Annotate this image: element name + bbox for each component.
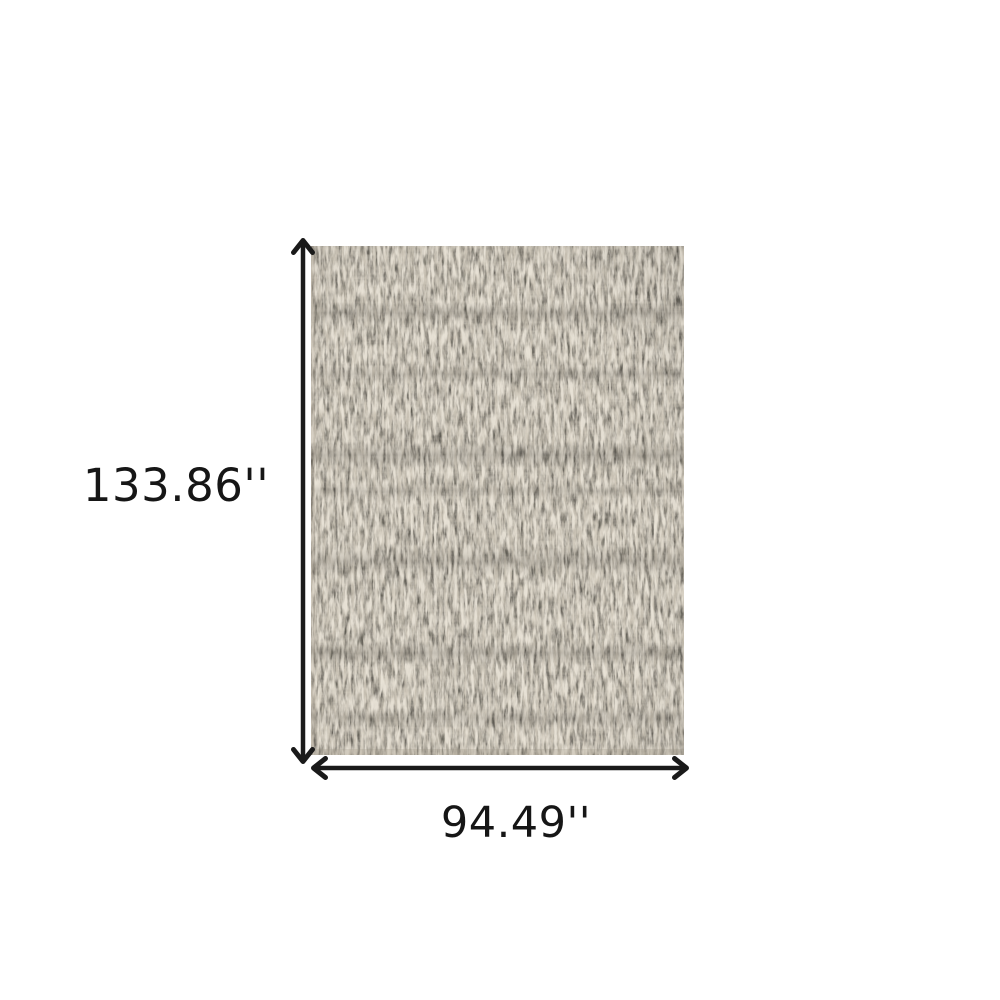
product-dimension-diagram: 133.86'' 94.49'' <box>0 0 1000 1000</box>
width-dimension-arrow <box>306 753 694 783</box>
width-dimension-label: 94.49'' <box>366 798 666 848</box>
rug-texture <box>311 246 684 755</box>
rug-image <box>311 246 684 755</box>
height-dimension-arrow <box>288 234 318 768</box>
height-dimension-label: 133.86'' <box>70 459 282 512</box>
